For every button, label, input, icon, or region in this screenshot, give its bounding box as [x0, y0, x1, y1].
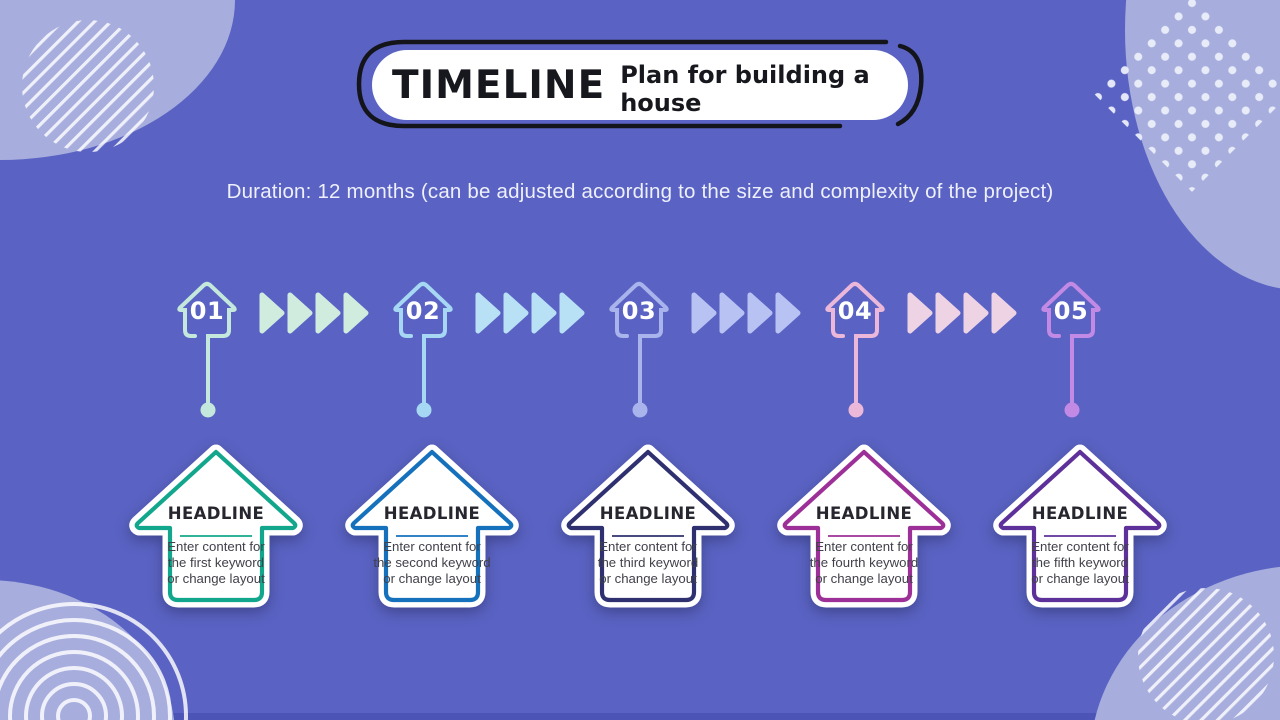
bottom-strip — [0, 713, 1280, 720]
stripes-top-left-decoration — [22, 20, 154, 152]
milestone-card-03: HEADLINE Enter content for the third key… — [552, 442, 744, 614]
slide-tagline: Plan for building a house — [620, 53, 908, 117]
card-headline: HEADLINE — [134, 504, 298, 523]
card-body: Enter content for the fifth keyword or c… — [998, 539, 1162, 587]
timeline-node-icon-02: 02 — [390, 276, 456, 424]
card-body: Enter content for the third keyword or c… — [566, 539, 730, 587]
card-body: Enter content for the second keyword or … — [350, 539, 514, 587]
milestone-card-02: HEADLINE Enter content for the second ke… — [336, 442, 528, 614]
arrows-02-to-03 — [474, 291, 588, 335]
node-dot — [1065, 403, 1080, 418]
milestone-card-04: HEADLINE Enter content for the fourth ke… — [768, 442, 960, 614]
card-headline: HEADLINE — [782, 504, 946, 523]
duration-note: Duration: 12 months (can be adjusted acc… — [0, 180, 1280, 204]
card-headline: HEADLINE — [350, 504, 514, 523]
title-pill: TIMELINE Plan for building a house — [372, 50, 908, 120]
card-body: Enter content for the first keyword or c… — [134, 539, 298, 587]
timeline-node-icon-01: 01 — [174, 276, 240, 424]
timeline-node-icon-05: 05 — [1038, 276, 1104, 424]
card-headline: HEADLINE — [998, 504, 1162, 523]
node-number: 02 — [406, 297, 440, 325]
node-number: 05 — [1054, 297, 1088, 325]
node-dot — [417, 403, 432, 418]
node-dot — [633, 403, 648, 418]
node-number: 04 — [838, 297, 872, 325]
milestone-card-01: HEADLINE Enter content for the first key… — [120, 442, 312, 614]
card-headline: HEADLINE — [566, 504, 730, 523]
arrows-04-to-05 — [906, 291, 1020, 335]
arrows-03-to-04 — [690, 291, 804, 335]
node-number: 01 — [190, 297, 224, 325]
timeline-node-icon-03: 03 — [606, 276, 672, 424]
node-number: 03 — [622, 297, 656, 325]
slide-title: TIMELINE — [392, 63, 605, 108]
milestone-card-05: HEADLINE Enter content for the fifth key… — [984, 442, 1176, 614]
node-dot — [201, 403, 216, 418]
timeline-node-icon-04: 04 — [822, 276, 888, 424]
node-dot — [849, 403, 864, 418]
slide-canvas: TIMELINE Plan for building a house Durat… — [0, 0, 1280, 720]
arrows-01-to-02 — [258, 291, 372, 335]
card-body: Enter content for the fourth keyword or … — [782, 539, 946, 587]
